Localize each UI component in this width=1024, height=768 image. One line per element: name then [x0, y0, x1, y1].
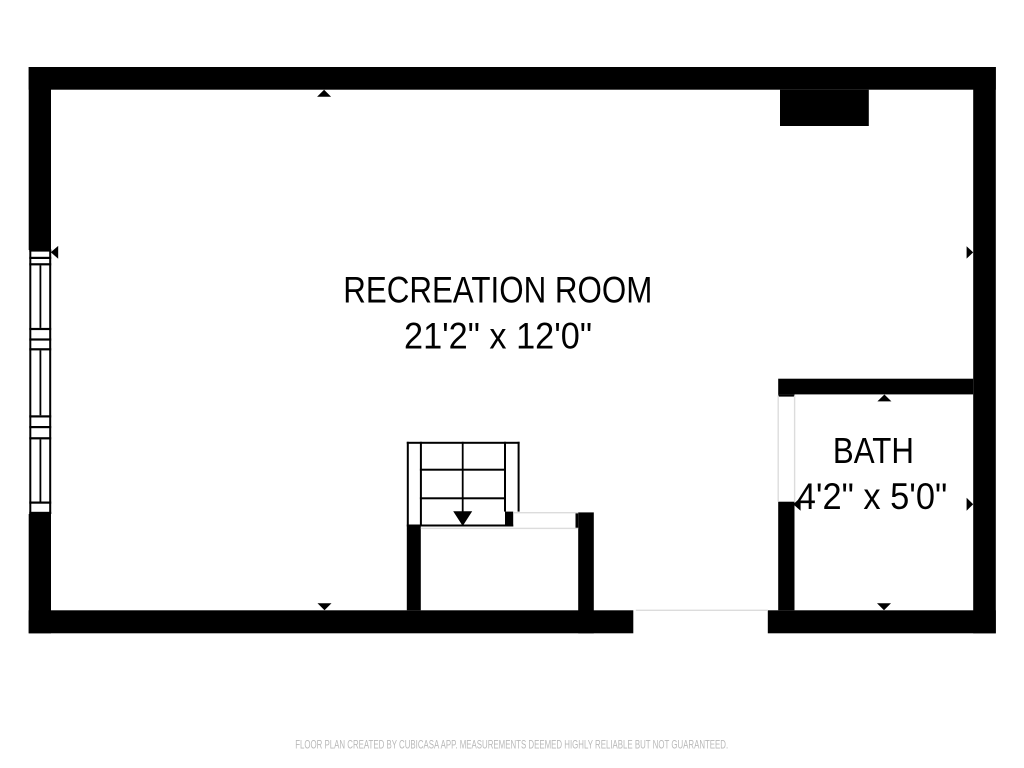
svg-text:4'2" x 5'0": 4'2" x 5'0" [797, 476, 948, 517]
svg-text:BATH: BATH [833, 430, 914, 471]
svg-text:RECREATION ROOM: RECREATION ROOM [343, 270, 652, 311]
svg-text:FLOOR PLAN CREATED BY CUBICASA: FLOOR PLAN CREATED BY CUBICASA APP. MEAS… [295, 737, 728, 751]
svg-text:21'2" x 12'0": 21'2" x 12'0" [404, 316, 592, 357]
